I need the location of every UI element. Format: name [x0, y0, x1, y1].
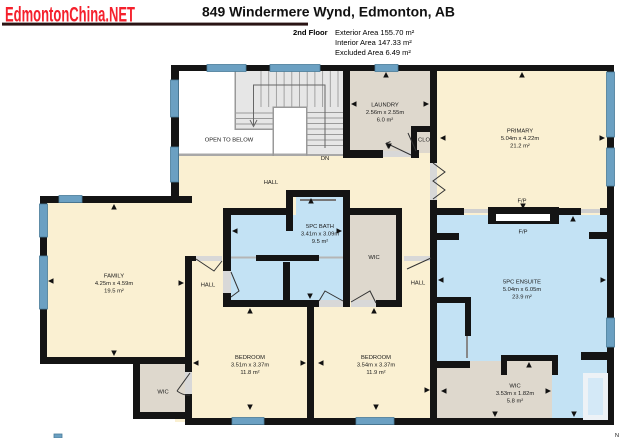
svg-text:5.8 m²: 5.8 m² — [507, 399, 523, 405]
svg-text:F/P: F/P — [518, 230, 527, 236]
svg-text:BEDROOM: BEDROOM — [361, 355, 391, 361]
svg-text:23.9 m²: 23.9 m² — [512, 295, 532, 301]
svg-text:11.9 m²: 11.9 m² — [366, 370, 385, 376]
svg-text:WIC: WIC — [509, 384, 520, 390]
svg-text:2nd Floor: 2nd Floor — [293, 28, 328, 37]
svg-text:849 Windermere Wynd, Edmonton,: 849 Windermere Wynd, Edmonton, AB — [202, 5, 455, 20]
svg-text:Excluded Area 6.49 m²: Excluded Area 6.49 m² — [335, 48, 411, 57]
svg-text:BEDROOM: BEDROOM — [235, 355, 265, 361]
svg-text:CLO: CLO — [418, 138, 430, 144]
svg-text:N: N — [615, 433, 619, 438]
svg-text:HALL: HALL — [264, 180, 279, 186]
svg-text:LAUNDRY: LAUNDRY — [371, 103, 399, 109]
svg-text:21.2 m²: 21.2 m² — [510, 144, 530, 150]
svg-text:2.56m x 2.55m: 2.56m x 2.55m — [366, 110, 405, 116]
svg-text:19.5 m²: 19.5 m² — [104, 289, 124, 295]
svg-text:5PC BATH: 5PC BATH — [306, 224, 334, 230]
svg-text:9.5 m²: 9.5 m² — [312, 239, 328, 245]
svg-text:Interior Area 147.33 m²: Interior Area 147.33 m² — [335, 38, 412, 47]
svg-text:3.53m x 1.82m: 3.53m x 1.82m — [496, 391, 535, 397]
svg-text:11.8 m²: 11.8 m² — [240, 370, 259, 376]
svg-text:FAMILY: FAMILY — [104, 274, 124, 280]
svg-text:6.0 m²: 6.0 m² — [377, 118, 393, 124]
svg-text:HALL: HALL — [411, 281, 426, 287]
svg-text:WIC: WIC — [157, 390, 168, 396]
svg-text:5PC ENSUITE: 5PC ENSUITE — [503, 280, 541, 286]
svg-text:WIC: WIC — [368, 255, 379, 261]
svg-text:3.54m x 3.37m: 3.54m x 3.37m — [357, 363, 396, 369]
svg-text:HALL: HALL — [201, 283, 216, 289]
svg-text:5.04m x 4.22m: 5.04m x 4.22m — [501, 136, 540, 142]
svg-text:PRIMARY: PRIMARY — [507, 129, 533, 135]
svg-text:5.04m x 6.05m: 5.04m x 6.05m — [503, 287, 542, 293]
svg-text:4.25m x 4.59m: 4.25m x 4.59m — [95, 281, 134, 287]
svg-text:3.41m x 3.09m: 3.41m x 3.09m — [301, 232, 340, 238]
svg-text:3.51m x 3.37m: 3.51m x 3.37m — [231, 363, 270, 369]
svg-text:Exterior Area 155.70 m²: Exterior Area 155.70 m² — [335, 28, 415, 37]
svg-text:OPEN TO BELOW: OPEN TO BELOW — [205, 138, 254, 144]
svg-text:F/P: F/P — [517, 199, 526, 205]
svg-text:DN: DN — [321, 156, 329, 162]
